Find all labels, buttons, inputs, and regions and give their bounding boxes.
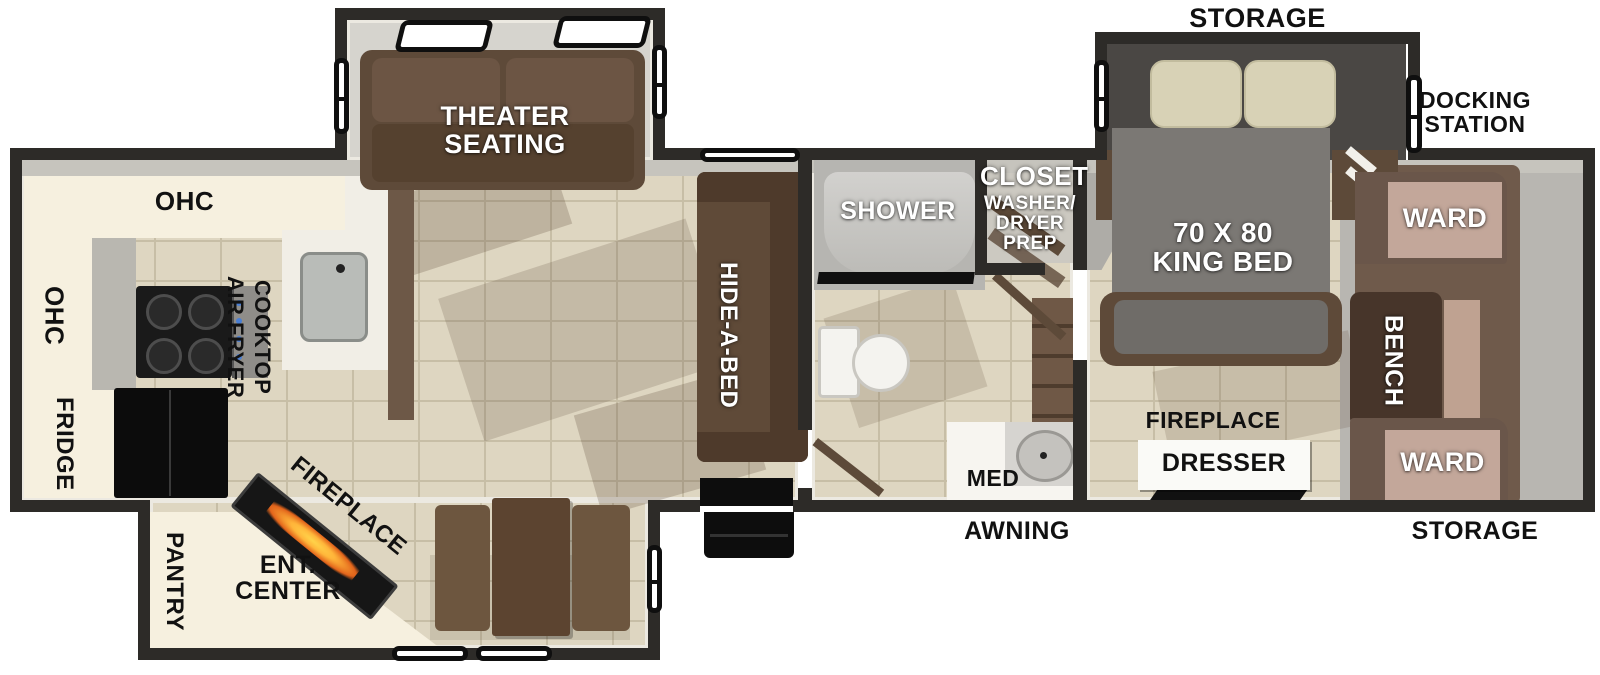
king-bed-pillow [1150, 60, 1242, 128]
shower-label: SHOWER [818, 198, 978, 224]
shower-door [817, 272, 975, 284]
king-bed-pillow [1244, 60, 1336, 128]
bench-label: BENCH [1380, 300, 1406, 422]
wall [798, 500, 1085, 512]
wall [1095, 32, 1420, 44]
king-bed-label: 70 X 80 KING BED [1118, 218, 1328, 277]
ent-line1: ENT. [218, 552, 358, 578]
wall [1073, 360, 1087, 512]
window [647, 545, 662, 613]
wall [1408, 148, 1595, 160]
ent-line2: CENTER [218, 578, 358, 604]
window [394, 20, 494, 52]
wd-line1: WASHER/ [980, 194, 1080, 214]
entry-door [700, 478, 793, 506]
king-bed-foot [1114, 300, 1328, 354]
rv-floorplan: STORAGE DOCKING STATION AWNING STORAGE O… [0, 0, 1600, 675]
wall [975, 263, 1045, 275]
theater-seating-label: THEATER SEATING [395, 102, 615, 159]
kitchen-peninsula-panel [388, 180, 414, 420]
entry-step [704, 512, 794, 558]
burner-icon [146, 338, 182, 374]
burner-icon [146, 294, 182, 330]
ohc-side-label: OHC [40, 256, 67, 376]
ohc-top-label: OHC [24, 188, 345, 215]
wall [10, 500, 150, 512]
burner-icon [188, 338, 224, 374]
dinette-bench [435, 505, 490, 631]
hide-a-bed-armrest [697, 432, 808, 462]
theater-line2: SEATING [395, 130, 615, 158]
fireplace-label-bedroom: FIREPLACE [1128, 408, 1298, 432]
fridge-seam [169, 390, 171, 496]
wall [10, 148, 347, 160]
window [1094, 60, 1109, 132]
storage-top-label: STORAGE [1095, 4, 1420, 32]
theater-line1: THEATER [395, 102, 615, 130]
bed-line2: KING BED [1118, 247, 1328, 276]
window [652, 45, 667, 119]
window [476, 646, 552, 661]
docking-line2: STATION [1395, 112, 1555, 136]
faucet-icon [336, 264, 345, 273]
wall [1073, 500, 1595, 512]
kitchen-sink [300, 252, 368, 342]
burner-icon [188, 294, 224, 330]
king-bed-body [1112, 128, 1330, 304]
wall [138, 500, 150, 660]
toilet-bowl [852, 334, 910, 392]
hide-a-bed-armrest [697, 172, 808, 202]
step-line [710, 534, 788, 537]
bed-line1: 70 X 80 [1118, 218, 1328, 247]
dinette-bench [572, 505, 630, 631]
wd-line3: PREP [980, 234, 1080, 254]
docking-station-label: DOCKING STATION [1395, 88, 1555, 136]
wd-line2: DRYER [980, 214, 1080, 234]
med-label: MED [948, 466, 1038, 490]
cooktop-label: COOKTOP [251, 250, 274, 425]
window [392, 646, 468, 661]
wall [798, 148, 812, 430]
dresser-label: DRESSER [1138, 450, 1310, 476]
air-fryer-label: AIR FRYER [224, 250, 247, 425]
faucet-icon [1040, 452, 1047, 459]
bench-side-panel [1444, 300, 1480, 430]
window [552, 16, 652, 48]
storage-bottom-label: STORAGE [1400, 518, 1550, 544]
awning-label: AWNING [942, 518, 1092, 544]
kitchen-counter-strip [92, 238, 136, 390]
ent-center-label: ENT. CENTER [218, 552, 358, 605]
ward-top-label: WARD [1388, 204, 1502, 232]
window [334, 58, 349, 134]
pantry-label: PANTRY [162, 518, 187, 644]
window [700, 148, 800, 162]
docking-line1: DOCKING [1395, 88, 1555, 112]
fridge [114, 388, 228, 498]
closet-label: CLOSET [980, 163, 1080, 190]
fridge-label: FRIDGE [52, 392, 77, 496]
nightstand [1096, 150, 1112, 220]
wall [798, 148, 1085, 160]
hide-a-bed-label: HIDE-A-BED [716, 210, 741, 460]
closet-label-group: CLOSET WASHER/ DRYER PREP [980, 163, 1080, 254]
wall [1583, 148, 1595, 512]
dinette-table [492, 498, 570, 636]
ward-bottom-label: WARD [1385, 448, 1500, 476]
wall [10, 148, 22, 512]
